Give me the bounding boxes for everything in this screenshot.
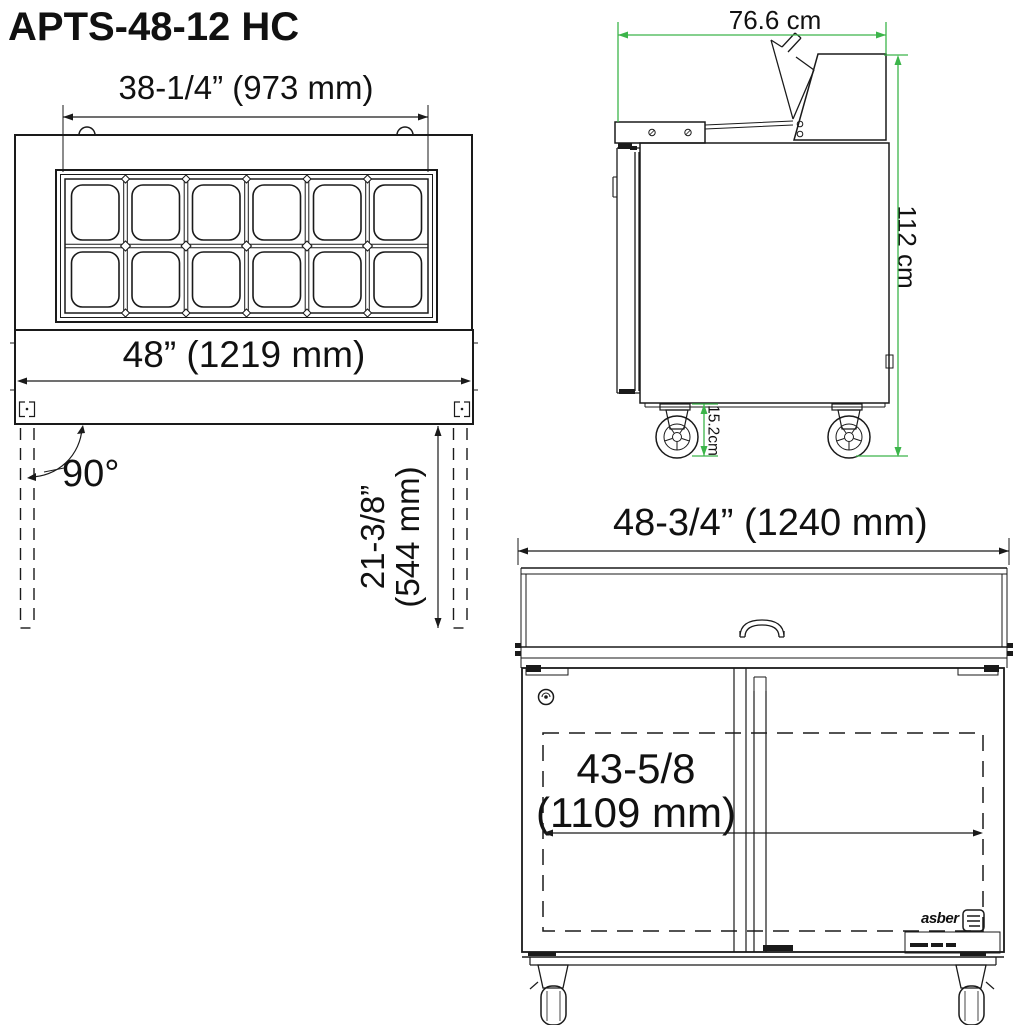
lid-handle-stub [782,33,801,52]
side-view-green-dimensions [618,22,908,457]
food-pan [374,252,422,307]
open-doors-dashed [21,428,468,628]
spec-sheet-page: { "title": "APTS-48-12 HC", "colors": { … [0,0,1024,1025]
door-top-hinge [618,143,632,149]
side-view-drawing [560,0,1024,480]
front-rail-bar [10,330,478,424]
front-view-drawing [490,495,1024,1025]
open-lid [771,33,886,140]
hood [515,568,1013,668]
top-view-dimension-lines [17,105,471,628]
side-body [615,121,893,407]
cabinet-top-outline [15,127,472,330]
food-pan [253,185,301,240]
food-pan [193,185,241,240]
top-view-drawing [0,60,512,660]
food-pan [72,252,120,307]
food-pan [374,185,422,240]
hinge-pin-bumps [79,127,413,135]
door-swing-arc [27,425,85,481]
center-mullion [734,668,766,952]
hood-handle [740,620,784,637]
pan-grid [65,175,428,317]
food-pan [314,185,362,240]
front-base-and-casters [522,952,1004,1025]
lid-support-arm [771,40,814,119]
side-casters [656,404,870,458]
food-pan [253,252,301,307]
food-pan [132,252,180,307]
food-pan [72,185,120,240]
food-pan [314,252,362,307]
model-title: APTS-48-12 HC [8,6,299,48]
front-view-dimension-lines [518,538,1009,837]
food-pan [132,185,180,240]
side-door [613,143,640,394]
food-pan [193,252,241,307]
front-doors [522,665,1004,952]
interior-dashed-outline [543,733,983,931]
door-bottom-hinge [619,389,635,394]
brand-badge [905,910,1000,953]
